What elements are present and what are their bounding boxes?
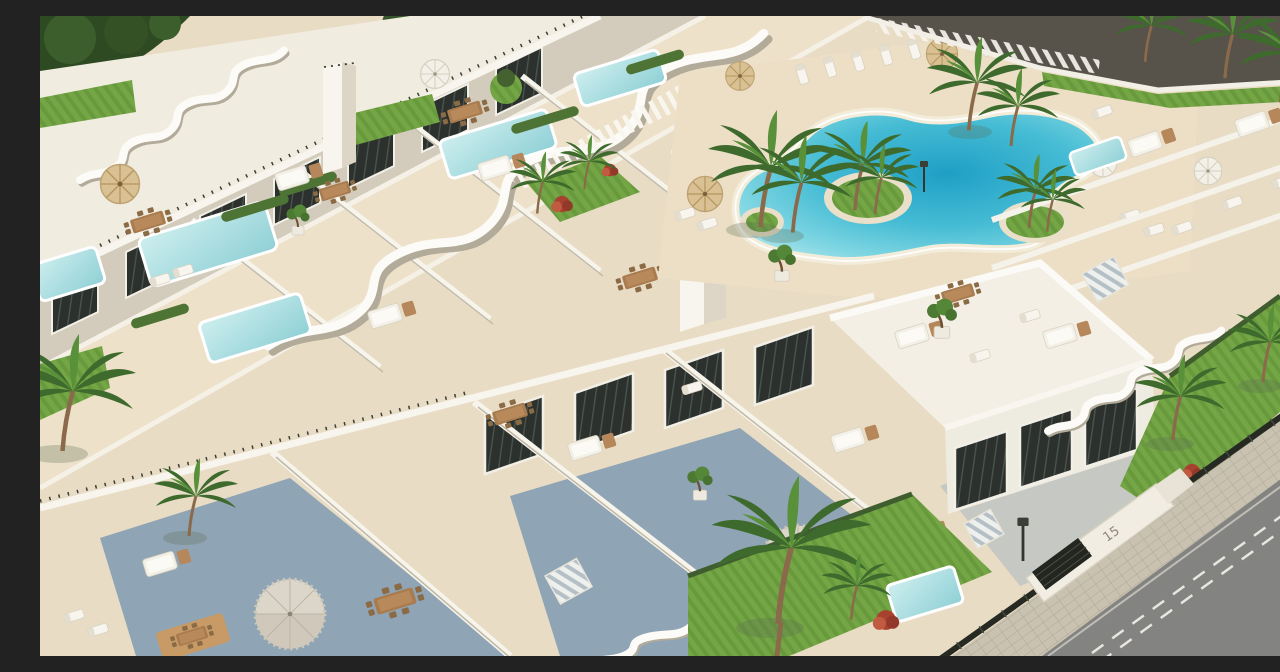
scene-canvas: 15 <box>40 16 1280 656</box>
stair-tower <box>323 62 356 174</box>
round-tree <box>497 69 515 87</box>
aerial-render: Aerial 3D architectural rendering of a m… <box>40 16 1280 656</box>
